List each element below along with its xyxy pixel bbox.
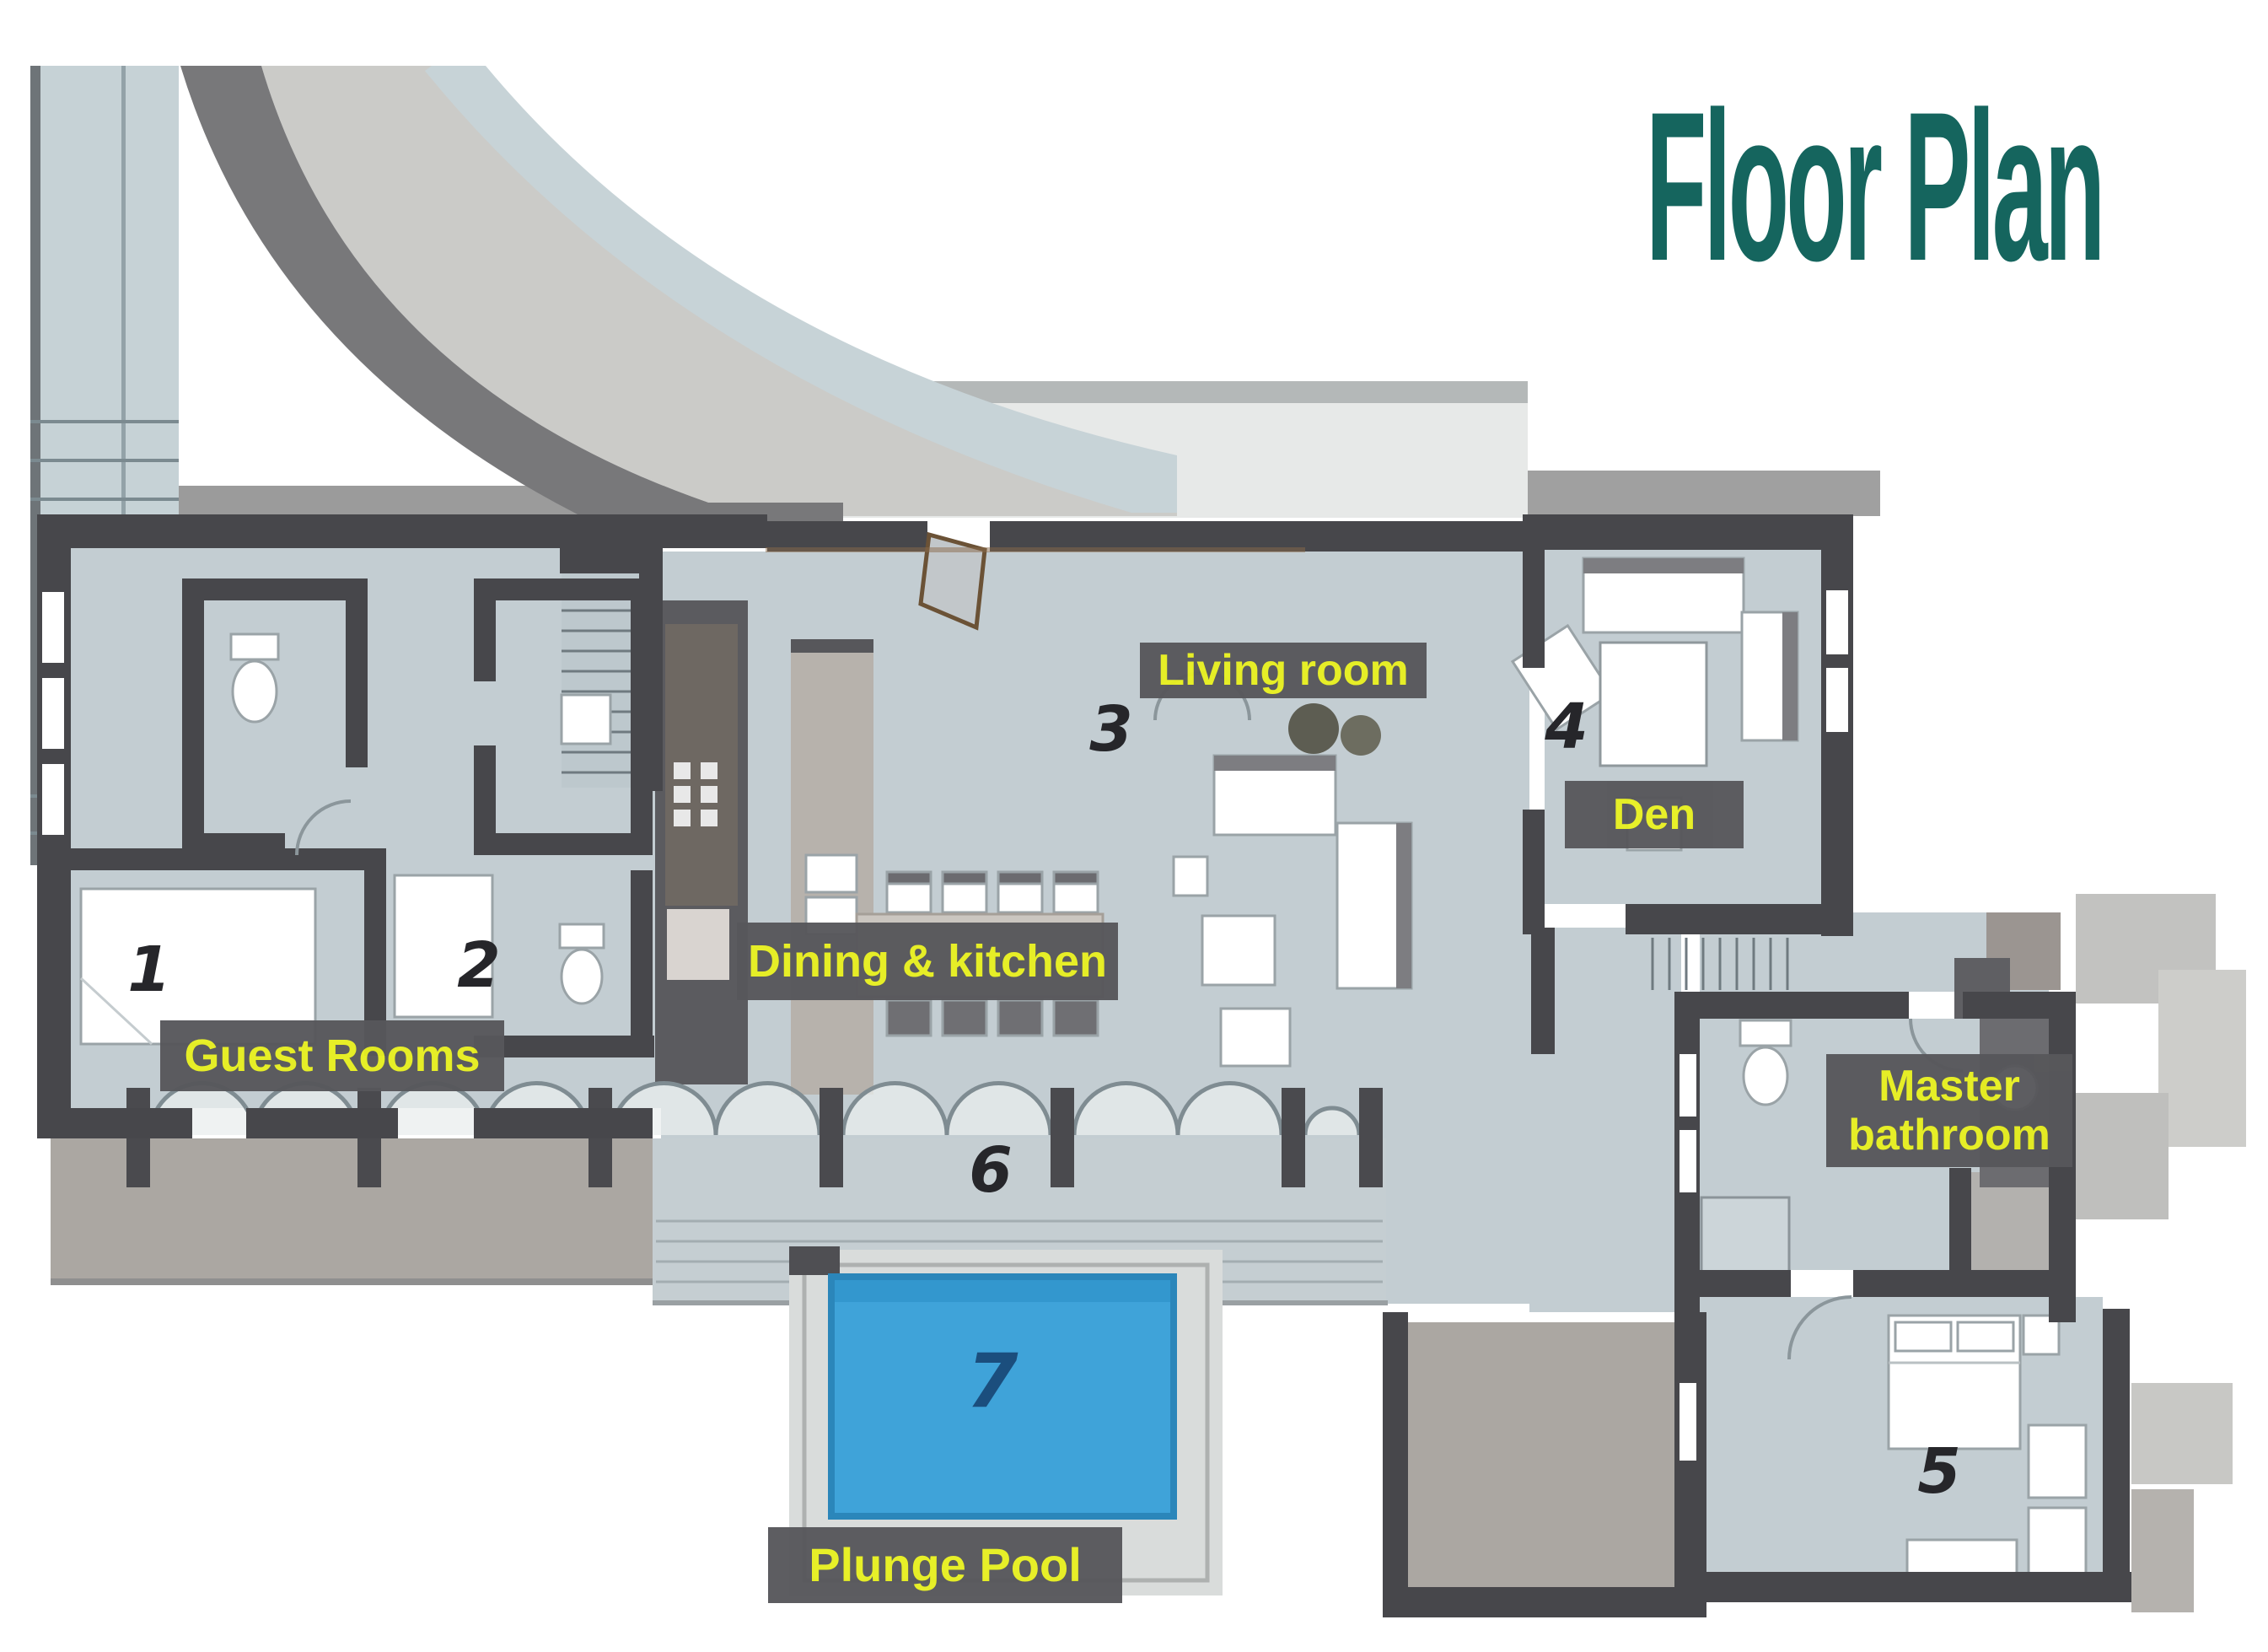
sink bbox=[806, 855, 857, 892]
page-title: Floor Plan bbox=[1646, 81, 2102, 293]
label-plunge-pool: Plunge Pool bbox=[768, 1527, 1122, 1603]
label-dining-kitchen: Dining & kitchen bbox=[737, 923, 1118, 1000]
number-den: 4 bbox=[1533, 690, 1600, 764]
plant bbox=[1288, 703, 1339, 754]
number-guest-room-1: 1 bbox=[116, 933, 183, 1007]
shower bbox=[1701, 1197, 1789, 1272]
label-den: Den bbox=[1565, 781, 1744, 848]
floor-plan-page: Floor Plan Living room Den Dining & kitc… bbox=[0, 0, 2268, 1652]
number-plunge-pool: 7 bbox=[942, 1330, 1043, 1431]
number-terrace: 6 bbox=[957, 1133, 1024, 1208]
toilet bbox=[233, 661, 277, 722]
label-living-room: Living room bbox=[1140, 643, 1427, 698]
number-living-room: 3 bbox=[1078, 692, 1145, 767]
courtyard-terrace bbox=[1408, 1322, 1681, 1587]
toilet bbox=[1744, 1047, 1787, 1105]
coffee-table bbox=[1221, 1009, 1290, 1066]
ottoman bbox=[1600, 643, 1706, 766]
label-guest-rooms: Guest Rooms bbox=[160, 1020, 504, 1091]
basin bbox=[562, 695, 610, 744]
number-master-bedroom: 5 bbox=[1905, 1434, 1973, 1509]
number-guest-room-2: 2 bbox=[445, 928, 513, 1003]
label-master-bathroom: Master bathroom bbox=[1826, 1054, 2072, 1167]
